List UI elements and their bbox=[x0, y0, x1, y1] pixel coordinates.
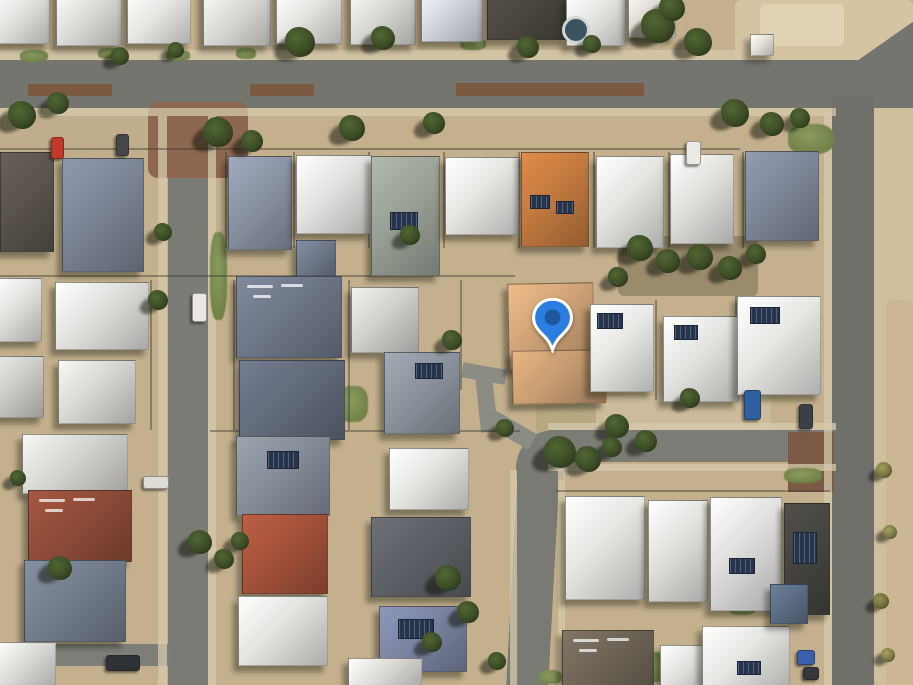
map-pin-icon[interactable] bbox=[529, 297, 576, 353]
house-roof bbox=[421, 0, 483, 42]
house-roof bbox=[670, 154, 734, 244]
tree bbox=[656, 249, 680, 273]
house-roof bbox=[0, 278, 42, 342]
tree bbox=[496, 419, 514, 437]
fence-line bbox=[655, 300, 657, 400]
tree bbox=[188, 530, 212, 554]
house-roof bbox=[562, 630, 654, 685]
house-roof bbox=[590, 304, 654, 392]
house-roof bbox=[28, 490, 132, 562]
house-roof bbox=[203, 0, 271, 46]
house-roof bbox=[0, 152, 54, 252]
house-roof bbox=[236, 436, 330, 516]
tree bbox=[423, 112, 445, 134]
roof-ridge-mark bbox=[281, 284, 303, 287]
map-pin-inner-dot bbox=[544, 309, 560, 325]
house-roof bbox=[371, 156, 440, 276]
car bbox=[143, 476, 169, 489]
fence-line bbox=[348, 280, 350, 430]
house-roof bbox=[296, 155, 372, 234]
tree bbox=[203, 117, 233, 147]
tree bbox=[442, 330, 462, 350]
tree bbox=[583, 35, 601, 53]
solar-panel-array bbox=[530, 195, 550, 209]
car bbox=[686, 141, 701, 165]
house-roof bbox=[389, 448, 469, 510]
fence-line bbox=[742, 152, 744, 248]
fence-line bbox=[293, 152, 295, 248]
house-roof bbox=[750, 34, 774, 56]
sidewalk bbox=[158, 116, 167, 685]
house-roof bbox=[596, 156, 664, 248]
tree bbox=[47, 92, 69, 114]
house-roof bbox=[663, 316, 739, 402]
house-roof bbox=[351, 287, 419, 353]
fence-line bbox=[0, 148, 740, 150]
tree bbox=[721, 99, 749, 127]
car bbox=[797, 650, 815, 665]
solar-panel-array bbox=[737, 661, 761, 675]
roof-ridge-mark bbox=[573, 639, 599, 642]
tree bbox=[10, 470, 26, 486]
car bbox=[51, 137, 64, 159]
tree bbox=[435, 565, 461, 591]
house-roof bbox=[348, 658, 422, 685]
solar-panel-array bbox=[556, 201, 574, 214]
car bbox=[744, 390, 761, 420]
house-roof bbox=[242, 514, 328, 594]
satellite-map-viewport[interactable] bbox=[0, 0, 913, 685]
tree bbox=[605, 414, 629, 438]
car bbox=[192, 293, 207, 322]
solar-panel-array bbox=[750, 307, 780, 324]
tree bbox=[148, 290, 168, 310]
grass-patch bbox=[538, 670, 562, 684]
tree bbox=[371, 26, 395, 50]
house-roof bbox=[0, 642, 56, 685]
house-roof bbox=[737, 296, 821, 395]
house-roof bbox=[239, 360, 345, 440]
tree bbox=[517, 36, 539, 58]
tree bbox=[214, 549, 234, 569]
tree bbox=[457, 601, 479, 623]
tree bbox=[684, 28, 712, 56]
tree bbox=[746, 244, 766, 264]
house-roof bbox=[58, 360, 136, 424]
house-roof bbox=[228, 156, 292, 250]
fence-line bbox=[593, 152, 595, 248]
tree bbox=[608, 267, 628, 287]
grass-patch bbox=[236, 48, 256, 59]
car bbox=[116, 134, 129, 156]
fence-line bbox=[556, 490, 830, 492]
house-roof bbox=[56, 0, 122, 46]
tree bbox=[659, 0, 685, 21]
roof-ridge-mark bbox=[253, 295, 271, 298]
house-roof bbox=[565, 496, 645, 600]
tree bbox=[881, 648, 895, 662]
tree bbox=[602, 437, 622, 457]
road bbox=[28, 84, 112, 96]
car bbox=[799, 404, 813, 429]
tree bbox=[883, 525, 897, 539]
sidewalk bbox=[510, 470, 517, 685]
car bbox=[803, 667, 819, 680]
house-roof bbox=[648, 500, 708, 602]
tree bbox=[111, 47, 129, 65]
house-roof bbox=[55, 282, 149, 350]
house-roof bbox=[62, 158, 144, 272]
tree bbox=[339, 115, 365, 141]
road bbox=[168, 106, 208, 685]
road bbox=[832, 96, 874, 685]
tree bbox=[231, 532, 249, 550]
road bbox=[456, 83, 644, 96]
roof-ridge-mark bbox=[247, 285, 273, 288]
house-roof bbox=[0, 356, 44, 418]
road bbox=[250, 84, 314, 96]
solar-panel-array bbox=[597, 313, 623, 329]
tree bbox=[400, 225, 420, 245]
car bbox=[106, 655, 140, 671]
house-roof bbox=[238, 596, 328, 666]
tree bbox=[790, 108, 810, 128]
tree bbox=[718, 256, 742, 280]
roof-ridge-mark bbox=[39, 499, 65, 502]
house-roof bbox=[236, 276, 342, 358]
sidewalk bbox=[548, 423, 836, 430]
tree bbox=[488, 652, 506, 670]
house-roof bbox=[296, 240, 336, 276]
house-roof bbox=[770, 584, 808, 624]
house-roof bbox=[0, 0, 50, 44]
grass-patch bbox=[784, 468, 822, 483]
solar-panel-array bbox=[674, 325, 698, 340]
tree bbox=[241, 130, 263, 152]
tree bbox=[8, 101, 36, 129]
tree bbox=[544, 436, 576, 468]
house-roof bbox=[487, 0, 567, 40]
tree bbox=[154, 223, 172, 241]
tree bbox=[285, 27, 315, 57]
tree bbox=[680, 388, 700, 408]
tree bbox=[760, 112, 784, 136]
house-roof bbox=[702, 626, 790, 685]
tree bbox=[168, 42, 184, 58]
tree bbox=[575, 446, 601, 472]
roof-ridge-mark bbox=[45, 509, 63, 512]
roof-ridge-mark bbox=[73, 498, 95, 501]
house-roof bbox=[445, 157, 519, 235]
sidewalk bbox=[208, 116, 216, 685]
tree bbox=[627, 235, 653, 261]
tree bbox=[422, 632, 442, 652]
tree bbox=[873, 593, 889, 609]
ground-patch bbox=[886, 300, 913, 685]
sidewalk bbox=[0, 108, 836, 116]
fence-line bbox=[233, 280, 235, 430]
tree bbox=[635, 430, 657, 452]
house-roof bbox=[384, 352, 460, 434]
tree bbox=[876, 462, 892, 478]
house-roof bbox=[22, 434, 128, 494]
house-roof bbox=[521, 152, 589, 247]
tree bbox=[687, 244, 713, 270]
solar-panel-array bbox=[793, 532, 817, 564]
tree bbox=[48, 556, 72, 580]
roof-ridge-mark bbox=[579, 649, 597, 652]
solar-panel-array bbox=[267, 451, 299, 469]
solar-panel-array bbox=[415, 363, 443, 379]
fence-line bbox=[225, 152, 227, 248]
roof-ridge-mark bbox=[607, 638, 629, 641]
solar-panel-array bbox=[729, 558, 755, 574]
house-roof bbox=[127, 0, 191, 44]
grass-patch bbox=[20, 50, 48, 62]
house-roof bbox=[745, 151, 819, 241]
